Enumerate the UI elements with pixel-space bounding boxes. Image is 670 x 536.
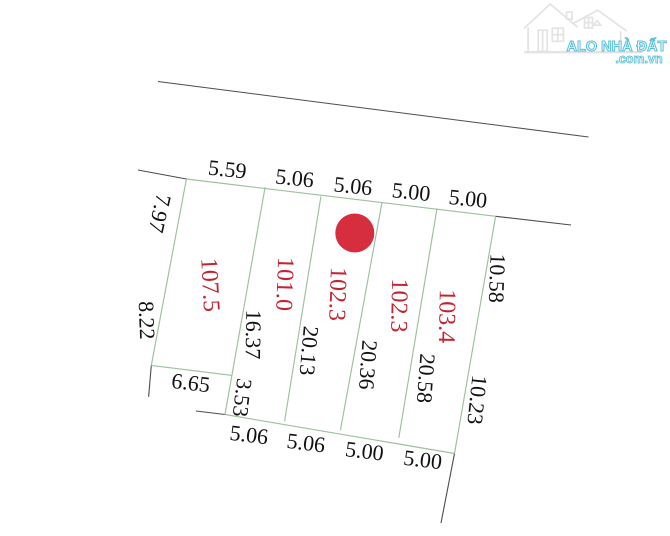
svg-text:5.00: 5.00 <box>448 184 489 213</box>
svg-text:.com.vn: .com.vn <box>615 52 662 66</box>
svg-text:3.53: 3.53 <box>228 377 258 418</box>
svg-text:10.58: 10.58 <box>484 253 511 303</box>
svg-text:20.58: 20.58 <box>412 353 440 404</box>
svg-text:10.23: 10.23 <box>462 374 492 426</box>
svg-text:102.3: 102.3 <box>323 267 351 322</box>
svg-text:5.06: 5.06 <box>274 163 315 192</box>
svg-text:5.59: 5.59 <box>207 155 248 184</box>
svg-text:5.06: 5.06 <box>285 428 326 458</box>
svg-text:103.4: 103.4 <box>433 289 460 343</box>
svg-text:101.0: 101.0 <box>270 257 298 312</box>
svg-text:20.13: 20.13 <box>295 325 324 376</box>
svg-text:107.5: 107.5 <box>195 257 224 312</box>
svg-text:5.00: 5.00 <box>402 445 443 475</box>
svg-text:5.00: 5.00 <box>344 436 385 466</box>
svg-text:6.65: 6.65 <box>170 368 211 398</box>
svg-text:5.00: 5.00 <box>391 177 432 206</box>
svg-text:20.36: 20.36 <box>354 339 382 390</box>
svg-text:8.22: 8.22 <box>134 301 160 340</box>
svg-text:16.37: 16.37 <box>241 310 267 360</box>
svg-text:5.06: 5.06 <box>333 171 374 200</box>
svg-text:5.06: 5.06 <box>228 420 269 450</box>
svg-text:102.3: 102.3 <box>385 278 412 332</box>
